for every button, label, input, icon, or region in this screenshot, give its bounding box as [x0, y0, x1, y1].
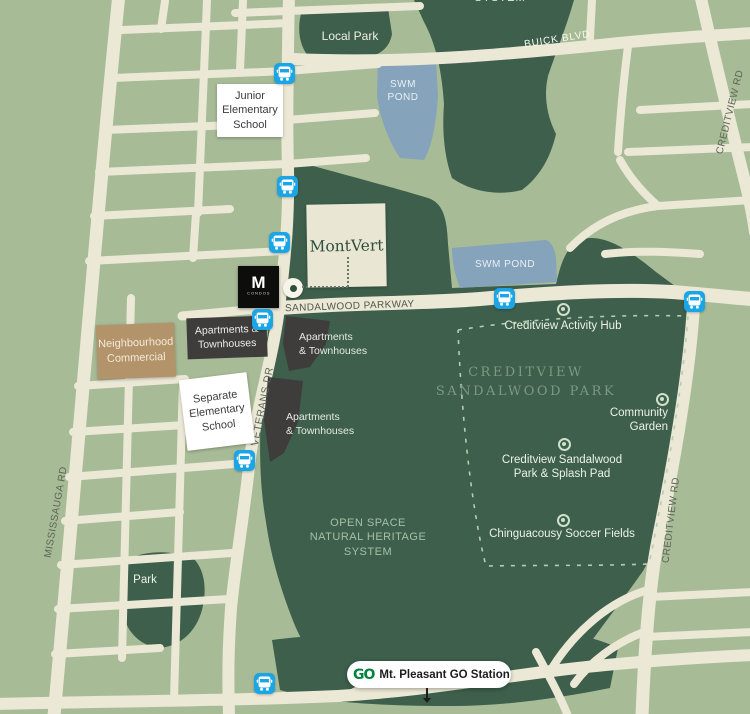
leader-line-vertical	[347, 257, 349, 287]
neighbourhood-commercial-box: Neighbourhood Commercial	[96, 323, 176, 380]
leader-line-horizontal	[302, 286, 348, 288]
separate-elementary-school-box: Separate Elementary School	[179, 372, 255, 451]
park-poi-marker-icon[interactable]	[557, 303, 570, 316]
bus-stop-icon[interactable]	[254, 673, 275, 694]
neighbourhood-commercial-label: Neighbourhood Commercial	[98, 335, 174, 367]
bus-stop-icon[interactable]	[277, 176, 298, 197]
community-garden-label: Community Garden	[588, 406, 668, 435]
small-park-label: Park	[124, 573, 166, 587]
soccer-fields-label: Chinguacousy Soccer Fields	[462, 527, 662, 541]
m-condos-m: M	[251, 274, 265, 291]
park-poi-marker-icon[interactable]	[656, 393, 669, 406]
m-condos-sub: CONDOS	[247, 291, 270, 296]
creditview-activity-hub-label: Creditview Activity Hub	[493, 319, 633, 333]
go-transit-logo: GO	[353, 668, 374, 682]
swm-pond-north-label: SWM POND	[370, 79, 436, 104]
bus-stop-icon[interactable]	[234, 450, 255, 471]
bus-stop-icon[interactable]	[269, 232, 290, 253]
go-station-badge[interactable]: GO Mt. Pleasant GO Station	[347, 661, 511, 688]
bus-stop-icon[interactable]	[494, 288, 515, 309]
system-cutoff-label: SYSTEM	[455, 0, 545, 6]
creditview-sandalwood-park-label: CREDITVIEW SANDALWOOD PARK	[426, 364, 626, 402]
apartments-c-label: Apartments & Townhouses	[286, 410, 366, 438]
site-location-marker[interactable]	[283, 278, 303, 298]
park-poi-marker-icon[interactable]	[557, 514, 570, 527]
go-station-arrow-icon	[426, 688, 428, 699]
m-condos-logo[interactable]: M CONDOS	[238, 266, 279, 308]
junior-elementary-school-label: Junior Elementary School	[222, 89, 278, 132]
swm-pond-north-area	[377, 56, 438, 160]
bus-stop-icon[interactable]	[252, 309, 273, 330]
sandalwood-parkway-label: SANDALWOOD PARKWAY WEST	[283, 299, 418, 329]
separate-elementary-school-label: Separate Elementary School	[187, 387, 247, 436]
open-space-label: OPEN SPACE NATURAL HERITAGE SYSTEM	[288, 516, 448, 559]
neighbourhood-map: SYSTEM Local Park SWM POND BUICK BLVD CR…	[0, 0, 750, 714]
splash-pad-label: Creditview Sandalwood Park & Splash Pad	[472, 453, 652, 482]
open-space-top-area	[414, 0, 574, 193]
bus-stop-icon[interactable]	[274, 63, 295, 84]
bus-stop-icon[interactable]	[684, 291, 705, 312]
go-station-label: Mt. Pleasant GO Station	[379, 669, 509, 681]
montvert-label: MontVert	[309, 236, 383, 255]
junior-elementary-school-box: Junior Elementary School	[217, 84, 283, 137]
apartments-b-label: Apartments & Townhouses	[299, 330, 379, 358]
local-park-label: Local Park	[300, 29, 400, 44]
apartments-a-label: Apartments & Townhouses	[195, 323, 260, 352]
swm-pond-east-label: SWM POND	[455, 259, 555, 272]
park-poi-marker-icon[interactable]	[558, 438, 571, 451]
